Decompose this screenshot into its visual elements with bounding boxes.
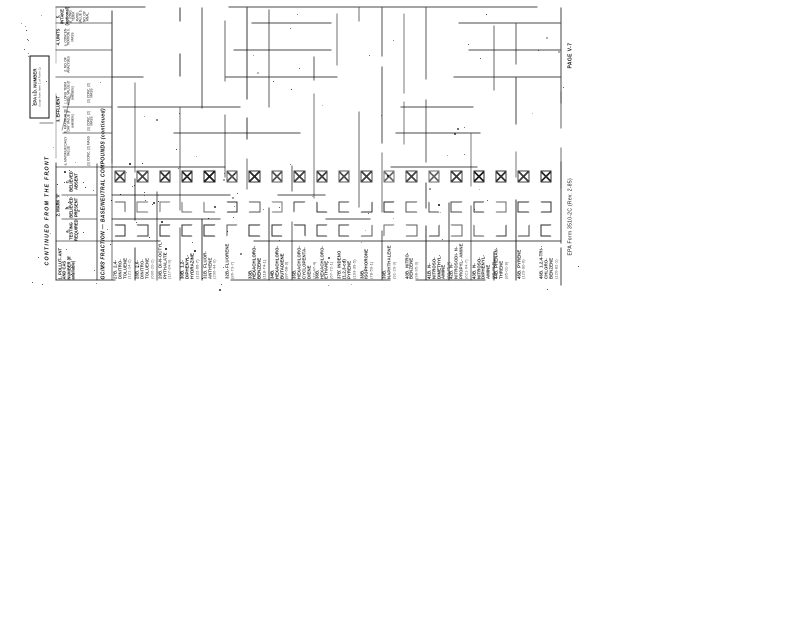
scan-speckle [464,154,465,155]
scan-speckle [273,81,274,82]
scan-speckle [24,49,25,50]
scan-speckle [107,229,108,230]
scan-speckle [257,72,259,74]
scan-speckle [234,174,235,175]
scan-speckle [297,14,298,15]
scan-speckle [149,237,150,238]
scan-speckle [361,242,362,243]
scan-speckle [194,250,196,252]
scan-speckle [134,185,135,186]
scan-speckle [351,284,352,285]
scan-speckle [42,284,43,285]
scan-speckle [178,168,179,169]
scan-speckle [83,182,84,183]
scan-speckle [68,202,69,203]
scan-speckle [126,172,127,173]
scan-speckle [237,193,238,194]
scan-speckle [480,58,481,59]
scan-speckle [32,282,33,283]
scan-speckle [69,170,70,171]
scan-speckle [223,179,225,181]
scan-speckle [21,23,22,24]
scan-speckle [328,257,330,259]
scan-speckle [322,105,323,106]
scan-speckle [158,195,159,196]
scan-speckle [290,164,291,165]
scan-speckle [75,162,76,163]
scan-speckle [158,201,159,202]
scan-speckle [196,156,197,157]
scan-speckle [46,81,47,82]
scan-speckle [486,14,487,15]
scan-speckle [299,68,300,69]
scan-speckle [208,218,209,219]
scan-speckle [368,213,369,214]
scan-speckle [487,200,488,201]
scan-speckle [144,116,145,117]
scan-speckle [66,249,67,250]
scan-speckle [100,82,101,83]
scan-speckle [83,232,84,233]
scan-speckle [381,115,382,116]
scan-speckle [279,240,280,241]
scan-speckle [144,192,145,193]
scan-speckle [144,195,145,196]
scan-speckle [78,210,80,212]
scan-speckle [165,248,167,250]
scan-speckle [328,285,329,286]
scan-speckle [263,209,264,210]
scan-speckle [547,289,548,290]
scan-speckle [192,242,193,243]
scan-speckle [464,127,465,128]
scan-speckle [67,196,68,197]
scan-speckle [176,149,177,150]
scan-speckle [474,209,475,210]
scan-speckle [32,92,33,93]
scan-speckle [221,284,222,285]
scan-speckle [93,190,94,191]
scan-speckle [291,89,292,90]
scan-speckle [27,39,28,40]
scan-speckle [57,184,58,185]
scan-speckle [26,30,27,31]
scan-speckle [25,26,26,27]
scan-speckle [227,269,228,270]
scan-speckle [546,267,547,268]
scan-speckle [64,182,65,183]
scan-speckle [136,222,137,223]
scan-speckle [161,221,163,223]
scan-speckle [28,40,29,41]
scan-speckle [186,259,187,260]
scan-speckle [38,257,39,258]
scan-speckle [152,204,153,205]
scan-speckle [50,233,51,234]
scan-speckle [219,289,221,291]
scan-speckle [447,155,448,156]
scan-speckle [94,270,95,271]
scan-speckle [440,212,441,213]
scan-speckle [53,147,54,148]
scan-speckle [393,40,394,41]
scan-speckle [214,206,216,208]
scan-speckle [442,239,443,240]
scan-speckle [279,207,280,208]
scan-canvas: CONTINUED FROM THE FRONT EPA I.D. NUMBER… [0,0,800,618]
scan-speckle [142,163,143,164]
scan-speckle [337,270,338,271]
scan-speckle [132,186,133,187]
scan-speckle [240,253,242,255]
scan-speckle [28,53,29,54]
scan-speckle [393,218,394,219]
scan-speckle [387,175,389,177]
scan-speckle [365,230,366,231]
scan-speckle [532,113,533,114]
scan-speckle [165,254,166,255]
scan-speckle [48,171,49,172]
scan-speckle [233,217,234,218]
scan-speckle [138,266,139,267]
scan-speckle [253,55,254,56]
scan-speckle [32,105,33,106]
scan-speckle [129,163,131,165]
scan-speckle [145,200,146,201]
scan-speckle [541,246,542,247]
scan-speckle [234,206,235,207]
scan-speckle [290,28,291,29]
scan-speckle [227,231,228,232]
scan-speckle [41,15,42,16]
scan-speckle [71,274,72,275]
scan-speckle [101,261,102,262]
scan-speckle [558,51,560,53]
scan-speckle [179,113,180,114]
scan-speckle [120,194,121,195]
scan-speckle [28,56,29,57]
scan-speckle [369,55,370,56]
scan-speckle [538,50,539,51]
scan-speckle [110,244,111,245]
scan-speckle [457,128,459,130]
scan-speckle [232,197,234,199]
scan-speckle [578,266,579,267]
scan-speckle [202,278,203,279]
scan-speckle [546,37,548,39]
scan-speckle [111,200,112,201]
scan-speckle [429,188,431,190]
scan-speckle [96,283,97,284]
scan-noise [0,0,800,618]
scan-speckle [153,202,155,204]
scan-speckle [328,262,329,263]
scan-speckle [223,267,224,268]
scan-speckle [468,44,469,45]
scan-speckle [312,196,313,197]
scan-speckle [156,119,158,121]
scan-speckle [438,204,440,206]
scan-speckle [64,171,66,173]
scan-speckle [85,187,86,188]
scan-speckle [479,189,480,190]
scan-speckle [454,133,456,135]
scan-speckle [224,173,225,174]
scan-speckle [563,87,564,88]
